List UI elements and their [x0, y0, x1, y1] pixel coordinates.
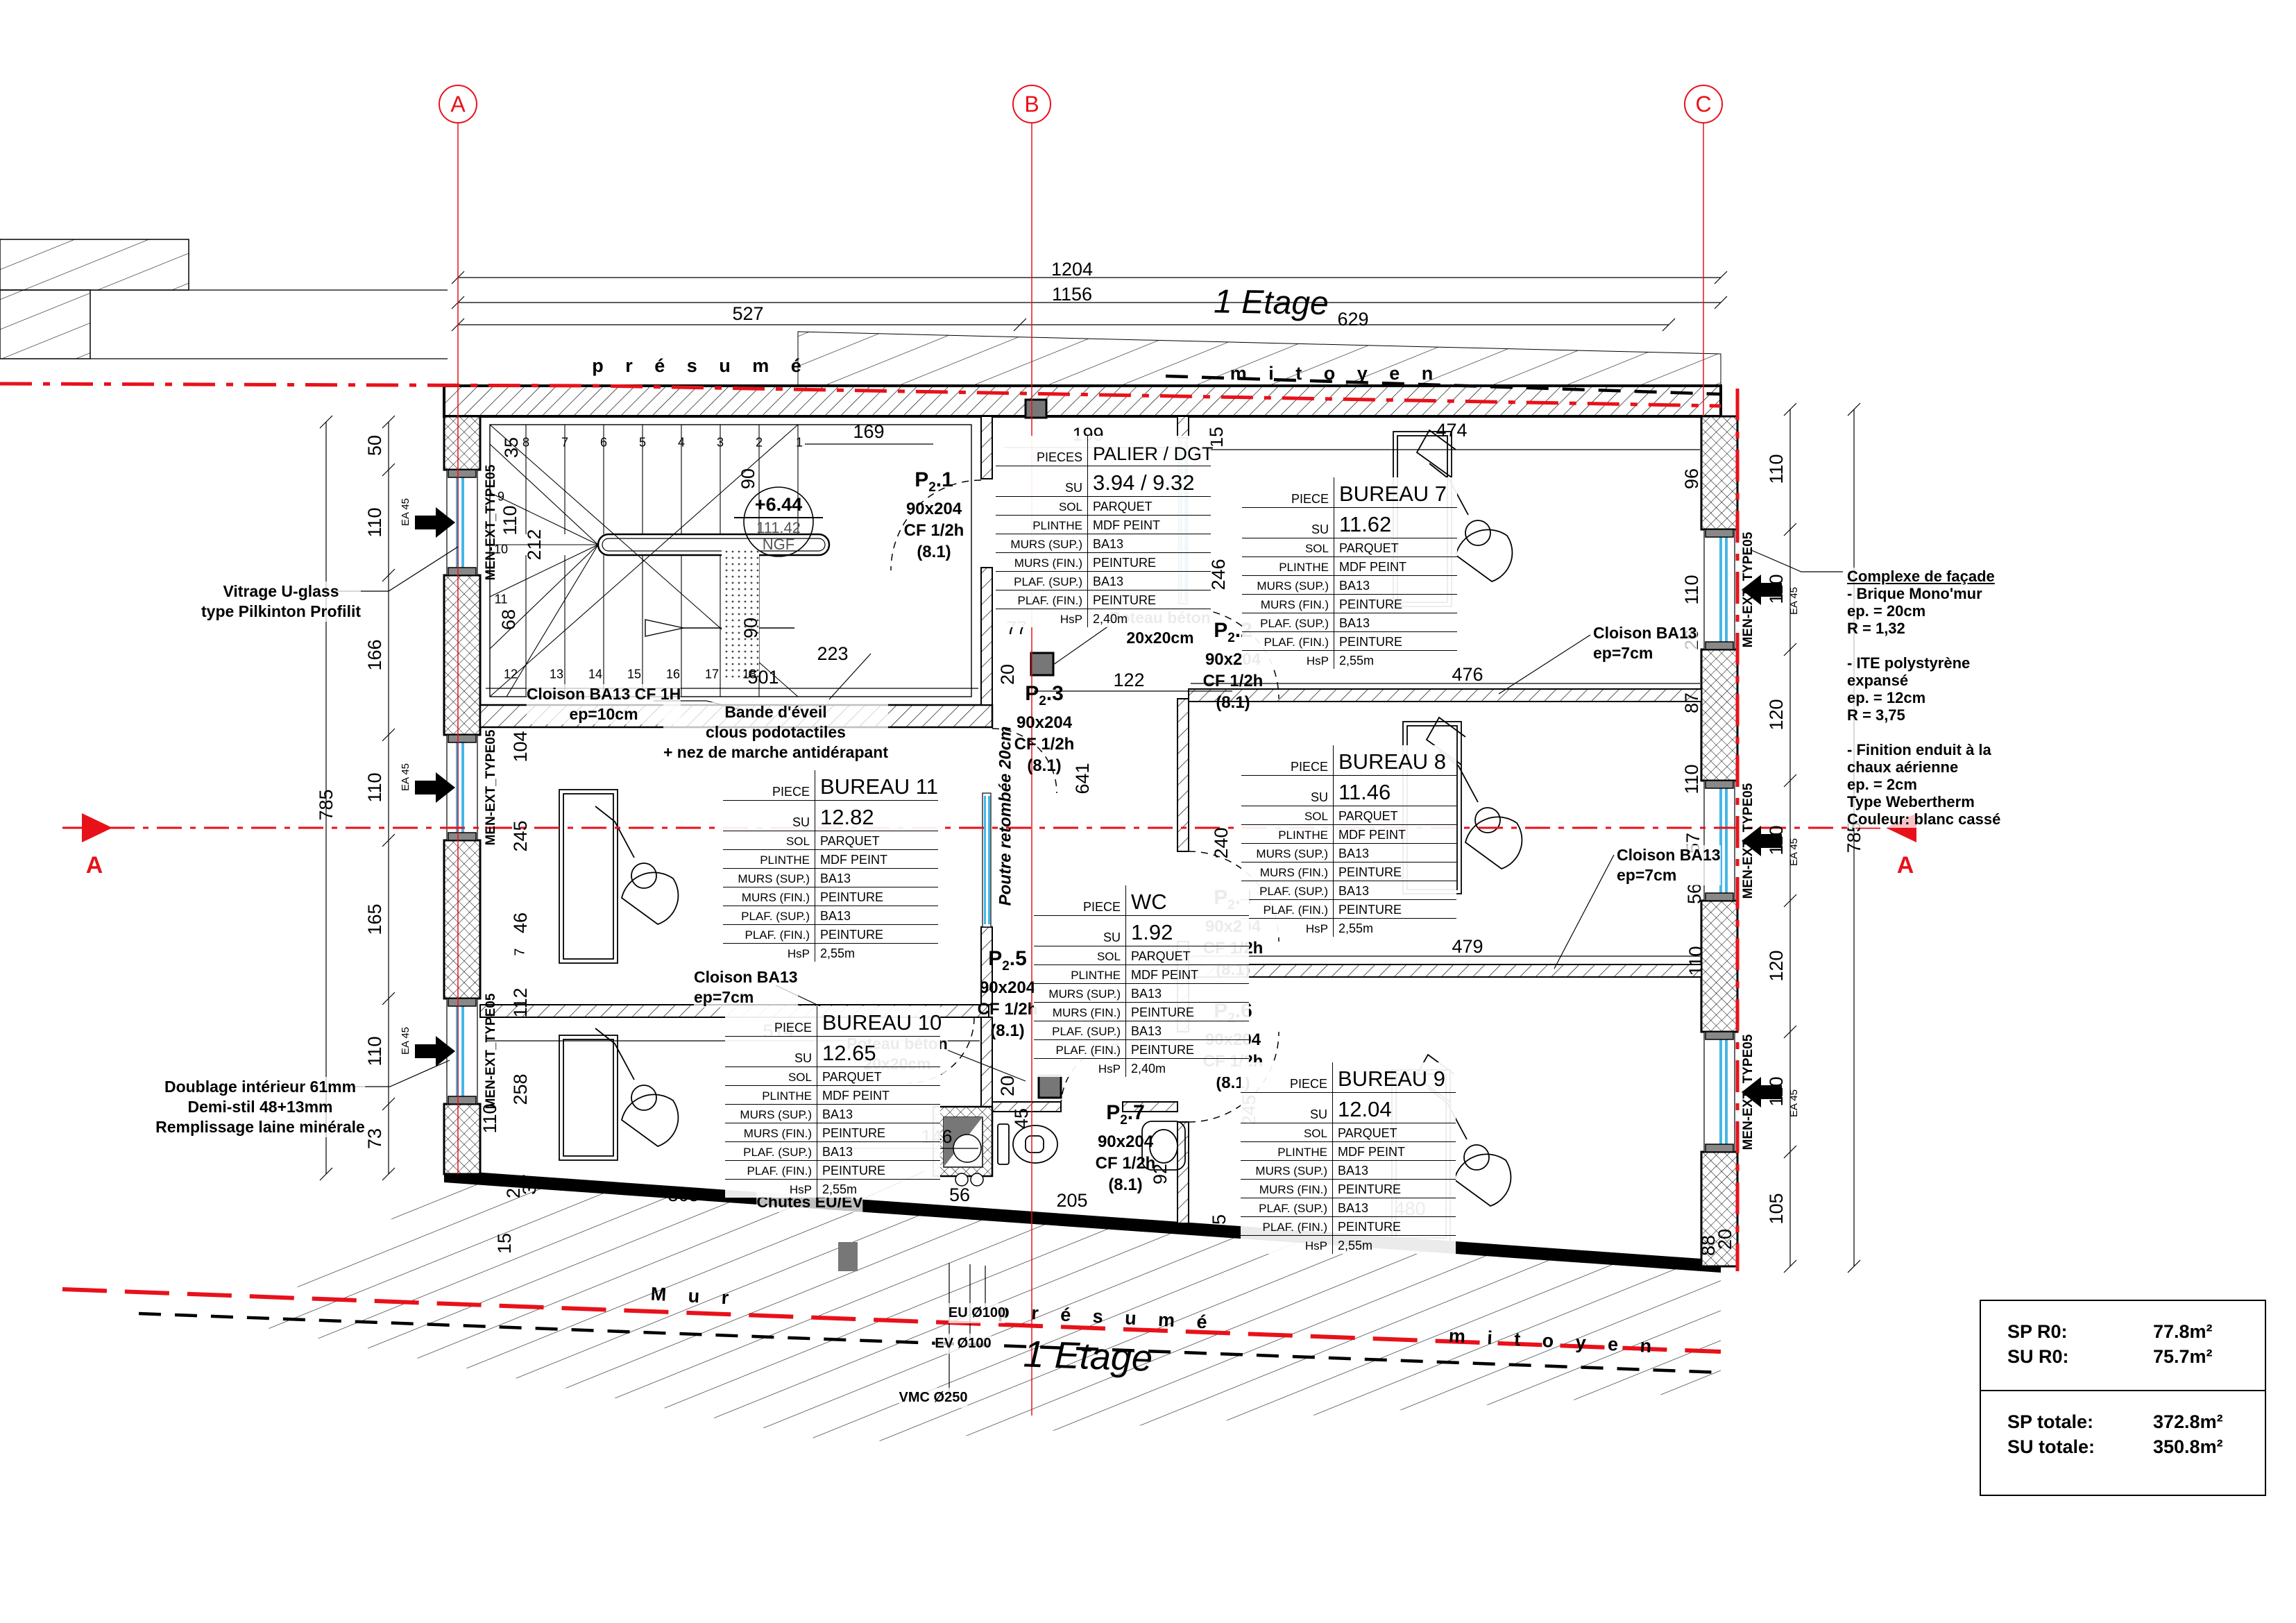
dim-label: 20 [1715, 1229, 1735, 1250]
stair-tread-number: 4 [678, 436, 685, 450]
dim-label: 50 [365, 435, 384, 456]
dim-label: 56 [949, 1185, 970, 1205]
stair-tread-number: 2 [756, 436, 763, 450]
staircase [490, 425, 971, 697]
dim-label: 169 [853, 422, 884, 441]
dim-label: 1156 [1052, 284, 1092, 304]
area-summary-table: SP R0: 77.8m² SU R0: 75.7m² SP totale: 3… [1980, 1300, 2266, 1496]
level-marker: +6.44 111.42 NGF [734, 494, 823, 553]
grid-axis-c: C [1684, 85, 1723, 124]
dim-label: 73 [365, 1128, 384, 1149]
party-wall-text: M u r [650, 1284, 738, 1309]
dim-label: 240 [1211, 827, 1231, 858]
stair-tread-number: 15 [627, 668, 641, 681]
dim-label: 7 [513, 948, 528, 955]
dim-label: 165 [365, 903, 384, 935]
dim-label: 110 [365, 772, 384, 802]
window-type-label: MEN-EXT_TYPE05 [484, 465, 498, 581]
air-inlet-label: EA 45 [1789, 1089, 1800, 1117]
annotation: Bande d'éveilclous podotactiles+ nez de … [663, 702, 888, 763]
summary-row-su-tot: SU totale: 350.8m² [2007, 1434, 2265, 1459]
dim-label: 245 [511, 820, 530, 851]
dim-label: 110 [1767, 1076, 1786, 1106]
level-ngf-value: 111.42 [756, 519, 801, 536]
annotation: Doublage intérieur 61mmDemi-stil 48+13mm… [155, 1077, 365, 1137]
dim-label: 110 [1682, 764, 1701, 794]
dim-label: 368 [667, 1185, 699, 1205]
door-label: P2.190x204CF 1/2h(8.1) [904, 469, 964, 563]
dim-label: 15 [495, 1233, 514, 1254]
dim-label: 110 [500, 505, 520, 535]
dim-label: 166 [365, 639, 384, 670]
window-type-label: MEN-EXT_TYPE05 [1742, 1035, 1755, 1150]
beam-note: Poutre retombée 20cm [996, 726, 1014, 906]
annotation: EV Ø100 [935, 1334, 991, 1354]
window-type-label: MEN-EXT_TYPE05 [484, 730, 498, 846]
annotation: Complexe de façade- Brique Mono'murep. =… [1847, 568, 2000, 828]
level-altitude: +6.44 [734, 494, 823, 518]
summary-row-su-r0: SU R0: 75.7m² [2007, 1344, 2265, 1369]
door-label: P2.390x204CF 1/2h(8.1) [1014, 683, 1075, 776]
summary-row-sp-tot: SP totale: 372.8m² [2007, 1409, 2265, 1434]
dim-label: 110 [365, 507, 384, 537]
dim-label: 20 [998, 664, 1017, 685]
dim-label: 110 [365, 1036, 384, 1066]
stair-tread-number: 8 [522, 436, 529, 450]
dim-label: 205 [1056, 1191, 1087, 1210]
dim-label: 122 [1113, 670, 1144, 690]
dim-label: 120 [1767, 950, 1786, 981]
window-type-label: MEN-EXT_TYPE05 [484, 994, 498, 1110]
stair-tread-number: 7 [561, 436, 568, 450]
dim-label: 90 [738, 468, 758, 489]
room-table: PIECESPALIER / DGTSU3.94 / 9.32SOLPARQUE… [996, 436, 1211, 627]
air-inlet-label: EA 45 [1789, 587, 1800, 615]
dim-label: 120 [1767, 699, 1786, 730]
room-table: PIECEBUREAU 9SU12.04SOLPARQUETPLINTHEMDF… [1241, 1062, 1456, 1254]
dim-label: 110 [1767, 825, 1786, 855]
dim-label: 110 [1767, 574, 1786, 604]
dim-label: 46 [511, 912, 530, 933]
party-wall-text: p r é s u m é [592, 356, 810, 375]
dim-label: 90 [741, 618, 760, 638]
dim-label: 45 [1012, 1108, 1031, 1129]
dim-label: 479 [1452, 937, 1483, 956]
dim-label: 246 [1209, 559, 1228, 590]
dim-label: 110 [1767, 454, 1786, 484]
room-table: PIECEBUREAU 8SU11.46SOLPARQUETPLINTHEMDF… [1241, 745, 1456, 937]
air-inlet-label: EA 45 [400, 498, 411, 526]
dim-label: 785 [316, 789, 336, 820]
window-type-label: MEN-EXT_TYPE05 [1742, 783, 1755, 899]
dim-label: 37 [520, 1174, 539, 1195]
annotation: Cloison BA13 CF 1Hep=10cm [527, 684, 681, 724]
air-inlet-label: EA 45 [400, 763, 411, 791]
stair-tread-number: 1 [796, 436, 803, 450]
dim-label: 104 [511, 731, 530, 762]
grid-axis-b: B [1012, 85, 1051, 124]
dim-label: 15 [1209, 1214, 1229, 1235]
dim-label: 105 [1767, 1193, 1786, 1224]
dim-label: 68 [499, 609, 518, 630]
dim-label: 56 [1685, 883, 1704, 904]
dim-label: 641 [1073, 763, 1092, 794]
dim-label: 87 [1682, 692, 1701, 713]
stair-tread-number: 3 [717, 436, 724, 450]
annotation: Vitrage U-glasstype Pilkinton Profilit [201, 581, 361, 622]
air-inlet-label: EA 45 [1789, 838, 1800, 866]
dim-label: 110 [1686, 946, 1706, 976]
annotation: Cloison BA13ep=7cm [1617, 845, 1721, 885]
stair-tread-number: 14 [588, 668, 602, 681]
dim-label: 96 [1682, 468, 1701, 489]
party-wall-text: m i t o y e n [1230, 364, 1442, 383]
dim-label: 474 [1436, 420, 1467, 440]
stair-tread-number: 16 [666, 668, 680, 681]
dim-label: 112 [511, 987, 530, 1017]
stair-tread-number: 17 [705, 668, 719, 681]
dim-label: 35 [502, 437, 521, 458]
air-inlet-label: EA 45 [400, 1027, 411, 1055]
level-ngf-datum: NGF [763, 536, 794, 553]
stair-tread-number: 9 [498, 491, 504, 504]
dim-label: 110 [1682, 575, 1701, 604]
section-marker-label: A [1897, 853, 1914, 878]
room-table: PIECEWCSU1.92SOLPARQUETPLINTHEMDF PEINTM… [1034, 885, 1249, 1077]
room-table: PIECEBUREAU 11SU12.82SOLPARQUETPLINTHEMD… [723, 770, 938, 962]
stair-tread-number: 13 [550, 668, 563, 681]
dim-label: 527 [732, 304, 763, 323]
room-table: PIECEBUREAU 10SU12.65SOLPARQUETPLINTHEMD… [725, 1006, 940, 1198]
stair-tread-number: 6 [600, 436, 607, 450]
room-table: PIECEBUREAU 7SU11.62SOLPARQUETPLINTHEMDF… [1242, 477, 1457, 669]
stair-tread-number: 5 [639, 436, 646, 450]
door-label: P2.790x204CF 1/2h(8.1) [1096, 1102, 1156, 1196]
dim-label: 212 [525, 529, 544, 560]
dim-label: 223 [817, 644, 848, 663]
annotation: Cloison BA13ep=7cm [694, 967, 798, 1008]
annotation: EU Ø100 [949, 1303, 1005, 1323]
floor-title-top: 1 Etage [1214, 284, 1329, 321]
annotation: Cloison BA13ep=7cm [1593, 623, 1697, 663]
dim-label: 1204 [1051, 260, 1093, 279]
stair-tread-number: 18 [742, 668, 756, 681]
dim-label: 629 [1337, 309, 1368, 329]
summary-row-sp-r0: SP R0: 77.8m² [2007, 1319, 2265, 1344]
floor-title-bottom: 1 Etage [1023, 1334, 1153, 1378]
floor-plan: +6.44 111.42 NGF SP R0: 77.8m² SU R0: 75… [0, 0, 2296, 1623]
stair-tread-number: 11 [495, 593, 508, 606]
dim-label: 258 [511, 1073, 530, 1105]
annotation: VMC Ø250 [899, 1388, 968, 1408]
window-type-label: MEN-EXT_TYPE05 [1742, 532, 1755, 648]
door-label: P2.590x204CF 1/2h(8.1) [978, 948, 1038, 1042]
grid-axis-a: A [439, 85, 477, 124]
section-marker-label: A [86, 853, 103, 878]
stair-tread-number: 12 [504, 668, 518, 681]
dim-label: 20 [998, 1076, 1017, 1096]
